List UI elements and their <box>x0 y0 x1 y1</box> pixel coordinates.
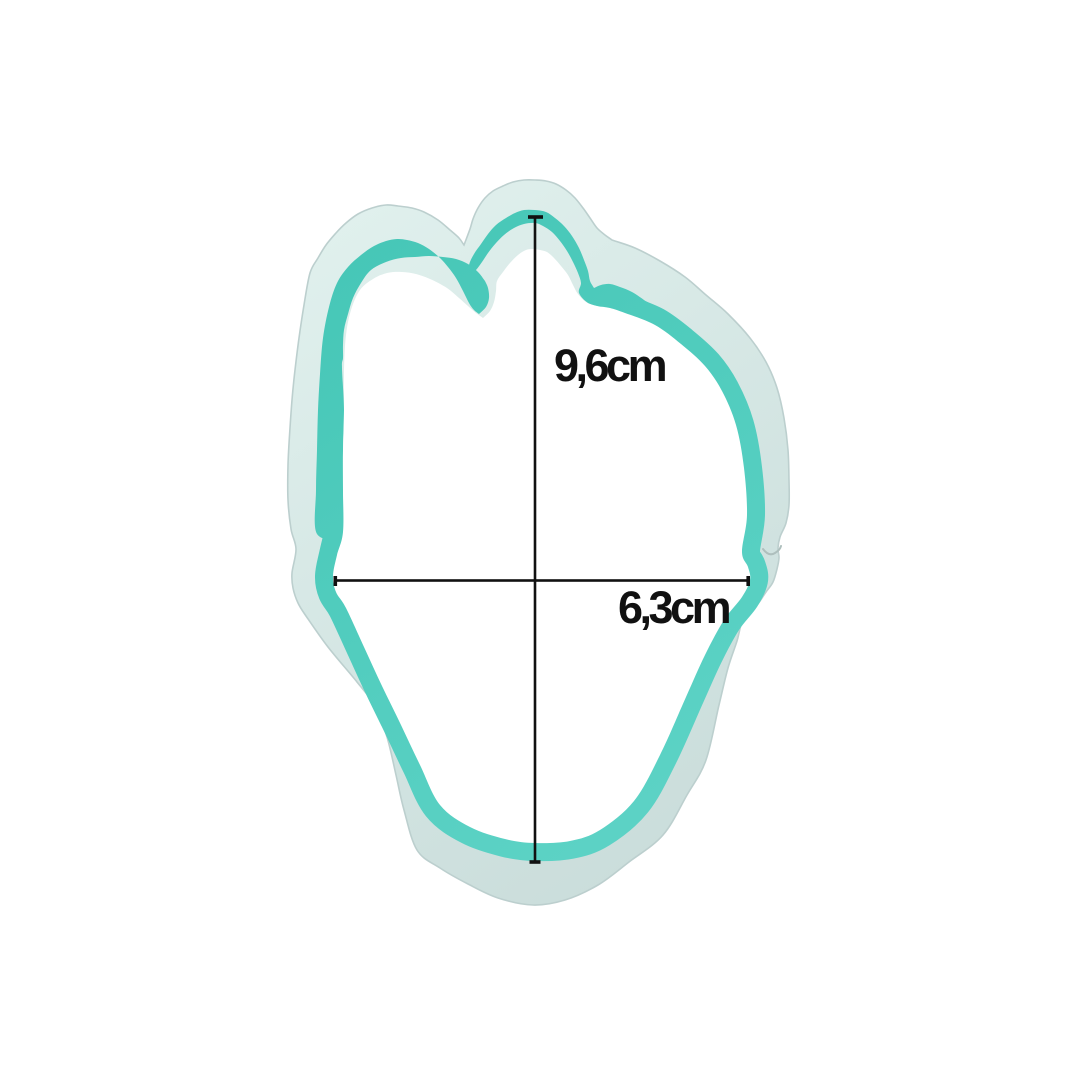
svg-text:9,6cm: 9,6cm <box>554 340 666 391</box>
svg-text:6,3cm: 6,3cm <box>618 582 730 633</box>
